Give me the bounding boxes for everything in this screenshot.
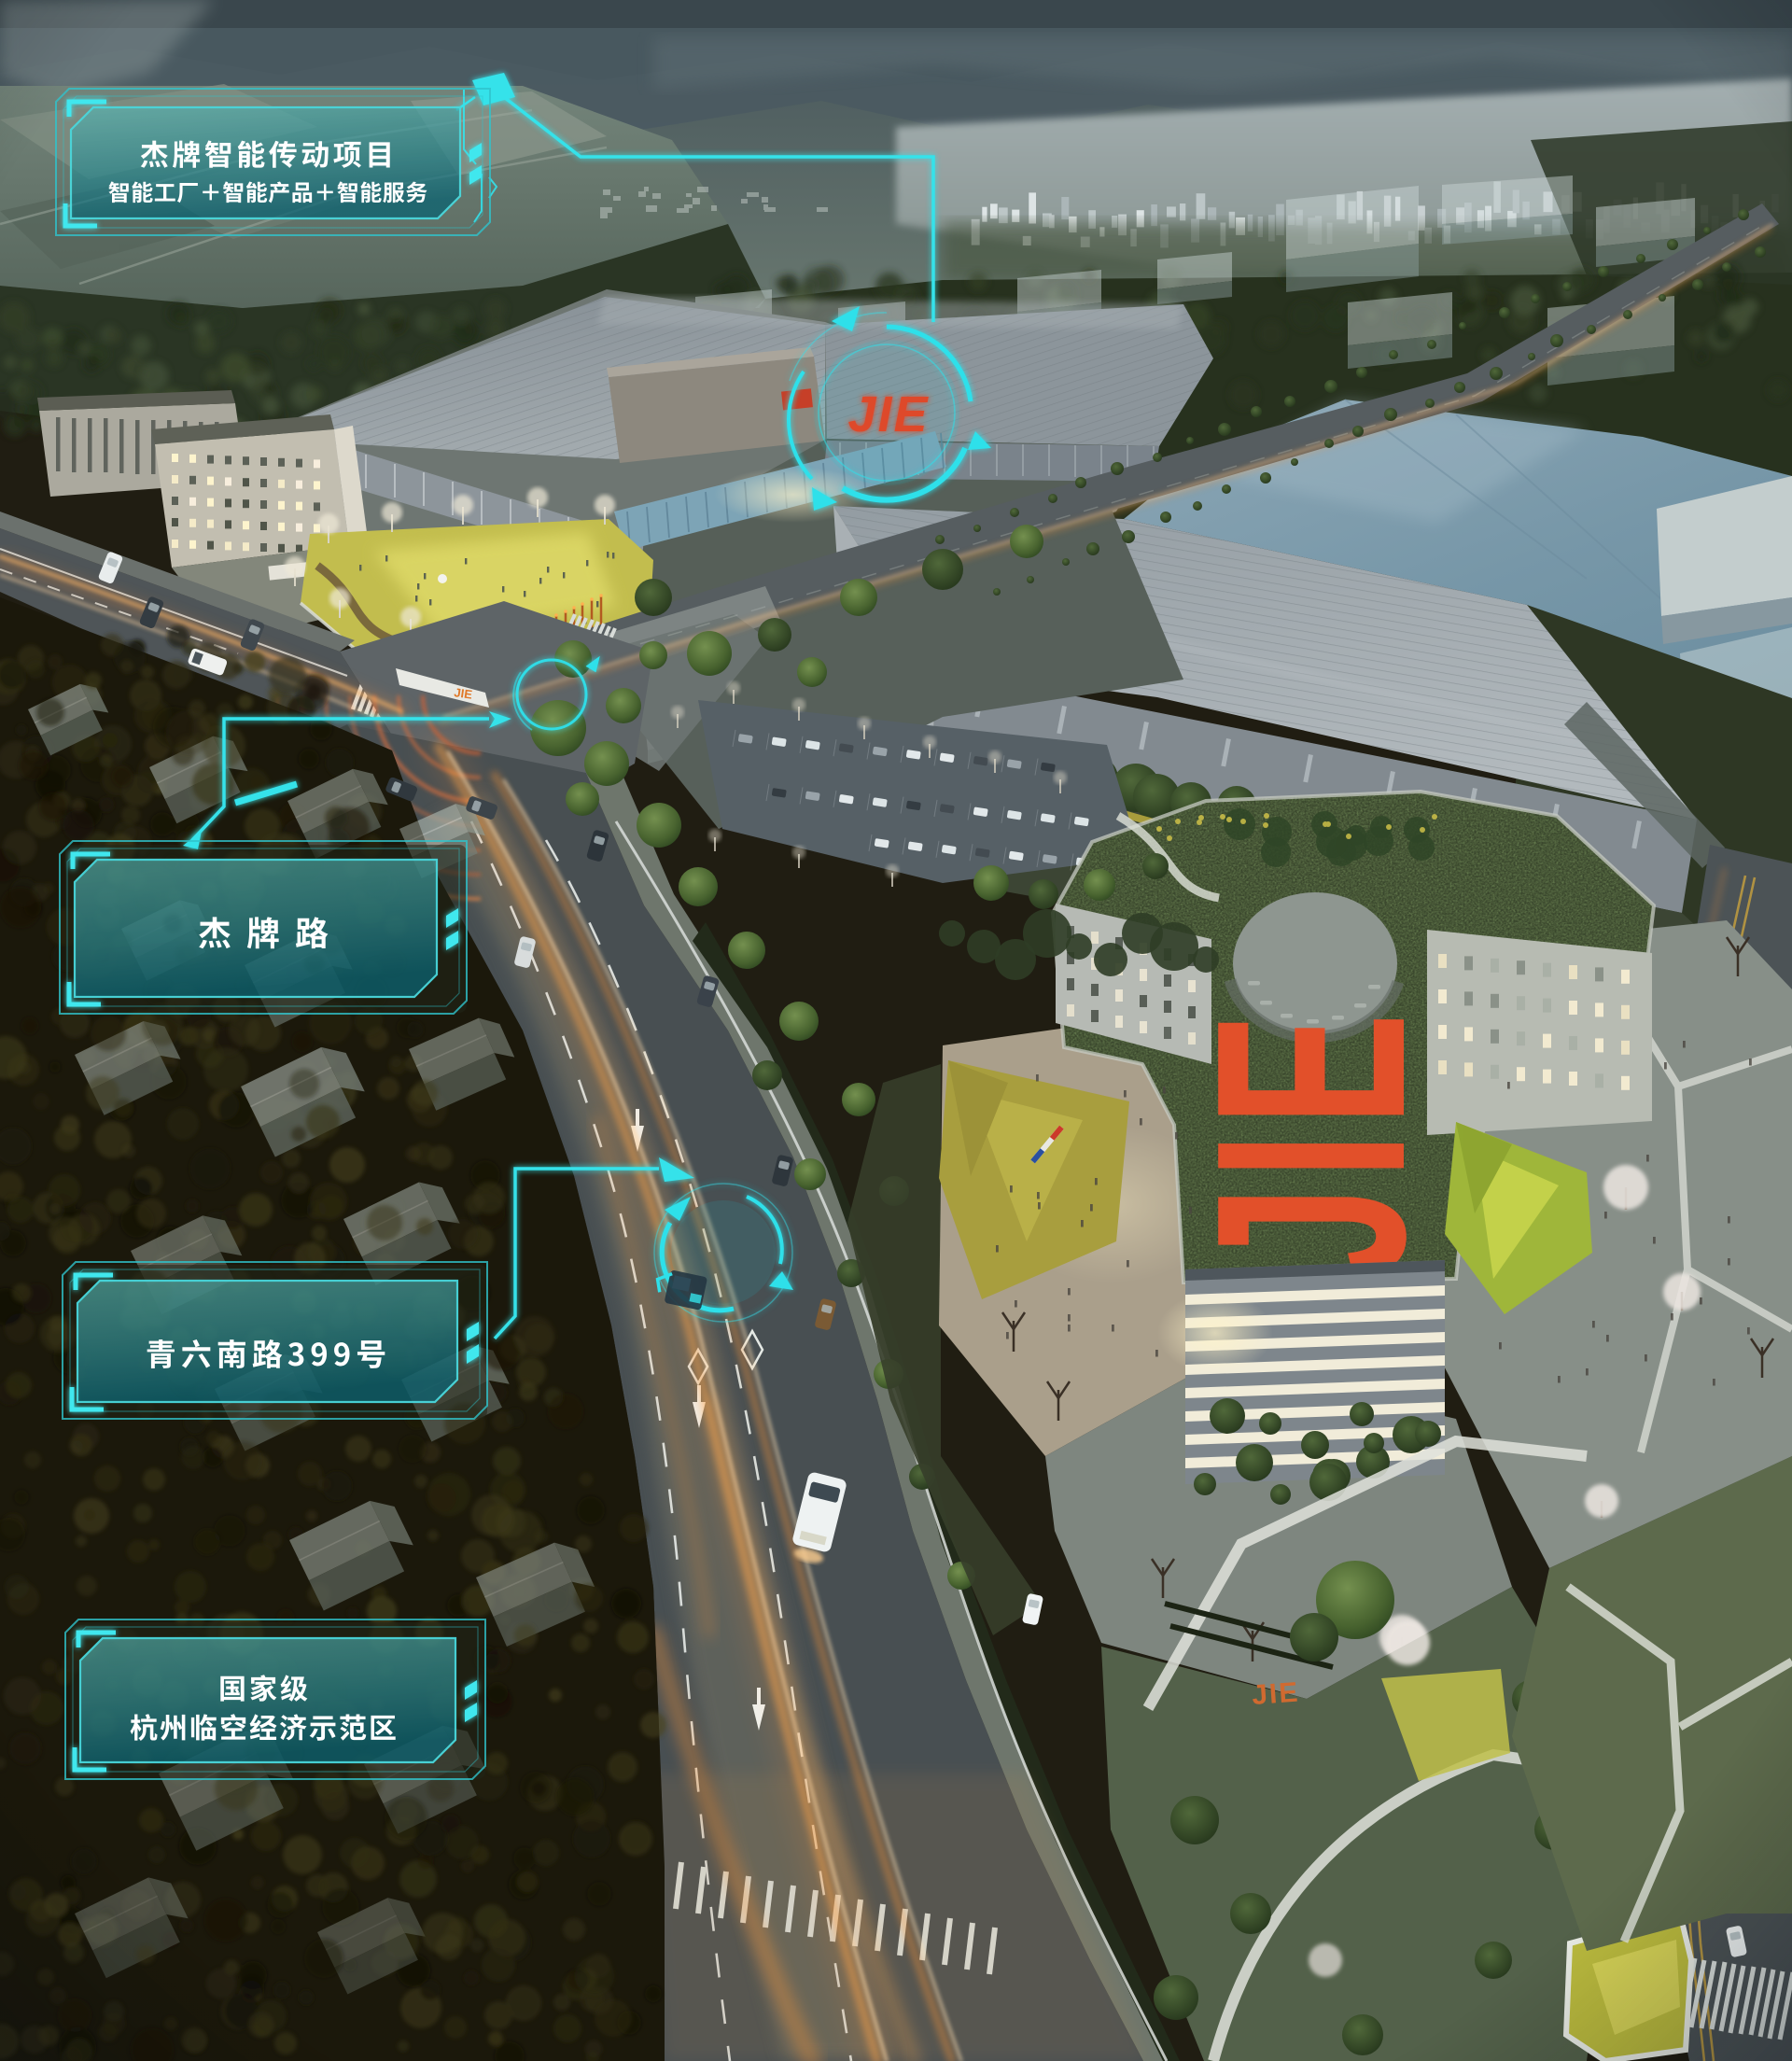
svg-text:JIE: JIE: [847, 386, 929, 442]
